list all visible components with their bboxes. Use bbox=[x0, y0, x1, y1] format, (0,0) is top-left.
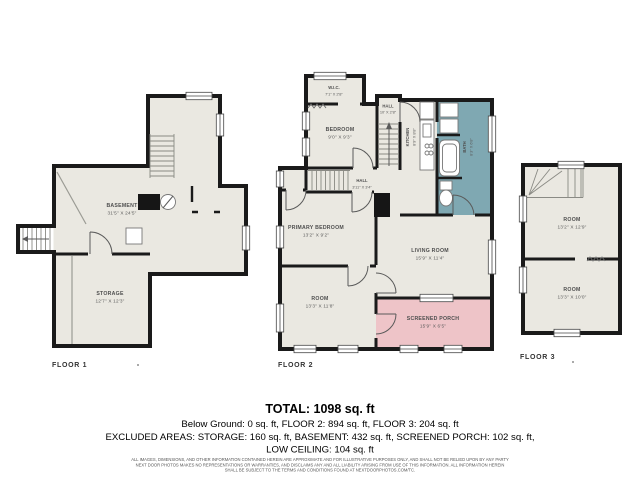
disclaimer: ALL IMAGES, DIMENSIONS, AND OTHER INFORM… bbox=[131, 457, 509, 473]
storage-dims: 12'7" X 12'3" bbox=[95, 299, 124, 304]
floor2-plan: W.I.C. 7'1" X 2'8" BEDROOM 9'0" X 9'3" H… bbox=[276, 72, 495, 369]
floor3-label: FLOOR 3 bbox=[520, 354, 555, 361]
screened-porch-dims: 15'9" X 6'5" bbox=[420, 324, 446, 329]
floor3-plan: ROOM 13'2" X 12'9" ROOM 13'3" X 10'0" FL… bbox=[519, 161, 620, 363]
bedroom-dims: 9'0" X 9'3" bbox=[328, 135, 352, 140]
total-area-text: TOTAL: 1098 sq. ft bbox=[265, 402, 375, 416]
wic-room bbox=[306, 76, 364, 104]
kitchen-dims: 8'9" X 8'8" bbox=[412, 128, 417, 146]
floor2-label: FLOOR 2 bbox=[278, 362, 313, 369]
hall-upper-label: HALL bbox=[382, 104, 394, 109]
basement-dims: 31'5" X 24'5" bbox=[107, 211, 136, 216]
furnace-icon bbox=[138, 194, 160, 210]
hall-label: HALL bbox=[356, 178, 368, 183]
floorplan-page: BASEMENT 31'5" X 24'5" STORAGE 12'7" X 1… bbox=[0, 0, 640, 480]
bath-label: BATH bbox=[462, 141, 467, 152]
floor3-footprint bbox=[523, 165, 620, 333]
room-dims: 13'3" X 11'8" bbox=[306, 304, 335, 309]
room-upper-dims: 13'2" X 12'9" bbox=[557, 225, 586, 230]
kitchen-counter-icons bbox=[420, 102, 434, 170]
living-room-dims: 15'9" X 11'4" bbox=[416, 256, 445, 261]
chimney-icon bbox=[374, 193, 390, 217]
room-label: ROOM bbox=[311, 296, 328, 302]
floor1-label: FLOOR 1 bbox=[52, 362, 87, 369]
primary-bedroom-dims: 13'2" X 9'2" bbox=[303, 233, 329, 238]
kitchen-label-group: KITCHEN 8'9" X 8'8" bbox=[405, 128, 417, 147]
disclaimer-line2: NEXT DOOR PHOTOS MAKES NO REPRESENTATION… bbox=[136, 462, 505, 467]
room-lower-dims: 13'3" X 10'0" bbox=[557, 295, 586, 300]
hall-dims: 3'11" X 3'4" bbox=[352, 185, 372, 190]
utility-box-icon bbox=[126, 228, 142, 244]
toilet-bowl-icon bbox=[440, 190, 453, 206]
room-upper-label: ROOM bbox=[563, 217, 580, 223]
hall-upper-dims: 10' X 2'8" bbox=[380, 110, 397, 115]
bedroom-label: BEDROOM bbox=[326, 127, 355, 133]
disclaimer-line3: SHALL BE SUBJECT TO THE TERMS AND CONDIT… bbox=[225, 468, 415, 473]
excluded-areas-text: EXCLUDED AREAS: STORAGE: 160 sq. ft, BAS… bbox=[105, 432, 534, 443]
kitchen-label: KITCHEN bbox=[405, 128, 410, 147]
floor-areas-text: Below Ground: 0 sq. ft, FLOOR 2: 894 sq.… bbox=[181, 419, 459, 430]
primary-bedroom-label: PRIMARY BEDROOM bbox=[288, 225, 344, 231]
room-lower-label: ROOM bbox=[563, 287, 580, 293]
screened-porch-label: SCREENED PORCH bbox=[407, 316, 460, 322]
scale-tick bbox=[572, 361, 574, 363]
area-summary: TOTAL: 1098 sq. ft Below Ground: 0 sq. f… bbox=[105, 402, 534, 456]
toilet-tank-icon bbox=[440, 181, 452, 190]
basement-stairs-icon bbox=[150, 134, 174, 178]
storage-label: STORAGE bbox=[96, 291, 124, 297]
wic-dims: 7'1" X 2'8" bbox=[325, 92, 343, 97]
living-room-label: LIVING ROOM bbox=[411, 248, 449, 254]
floorplan-image: BASEMENT 31'5" X 24'5" STORAGE 12'7" X 1… bbox=[0, 0, 640, 480]
disclaimer-line1: ALL IMAGES, DIMENSIONS, AND OTHER INFORM… bbox=[131, 457, 509, 462]
wic-label: W.I.C. bbox=[328, 85, 339, 90]
scale-tick bbox=[137, 364, 139, 366]
floor1-plan: BASEMENT 31'5" X 24'5" STORAGE 12'7" X 1… bbox=[18, 92, 250, 369]
bath-dims: 8'3" X 6'8" bbox=[469, 138, 474, 156]
low-ceiling-text: LOW CEILING: 104 sq. ft bbox=[266, 445, 374, 456]
basement-label: BASEMENT bbox=[106, 203, 138, 209]
